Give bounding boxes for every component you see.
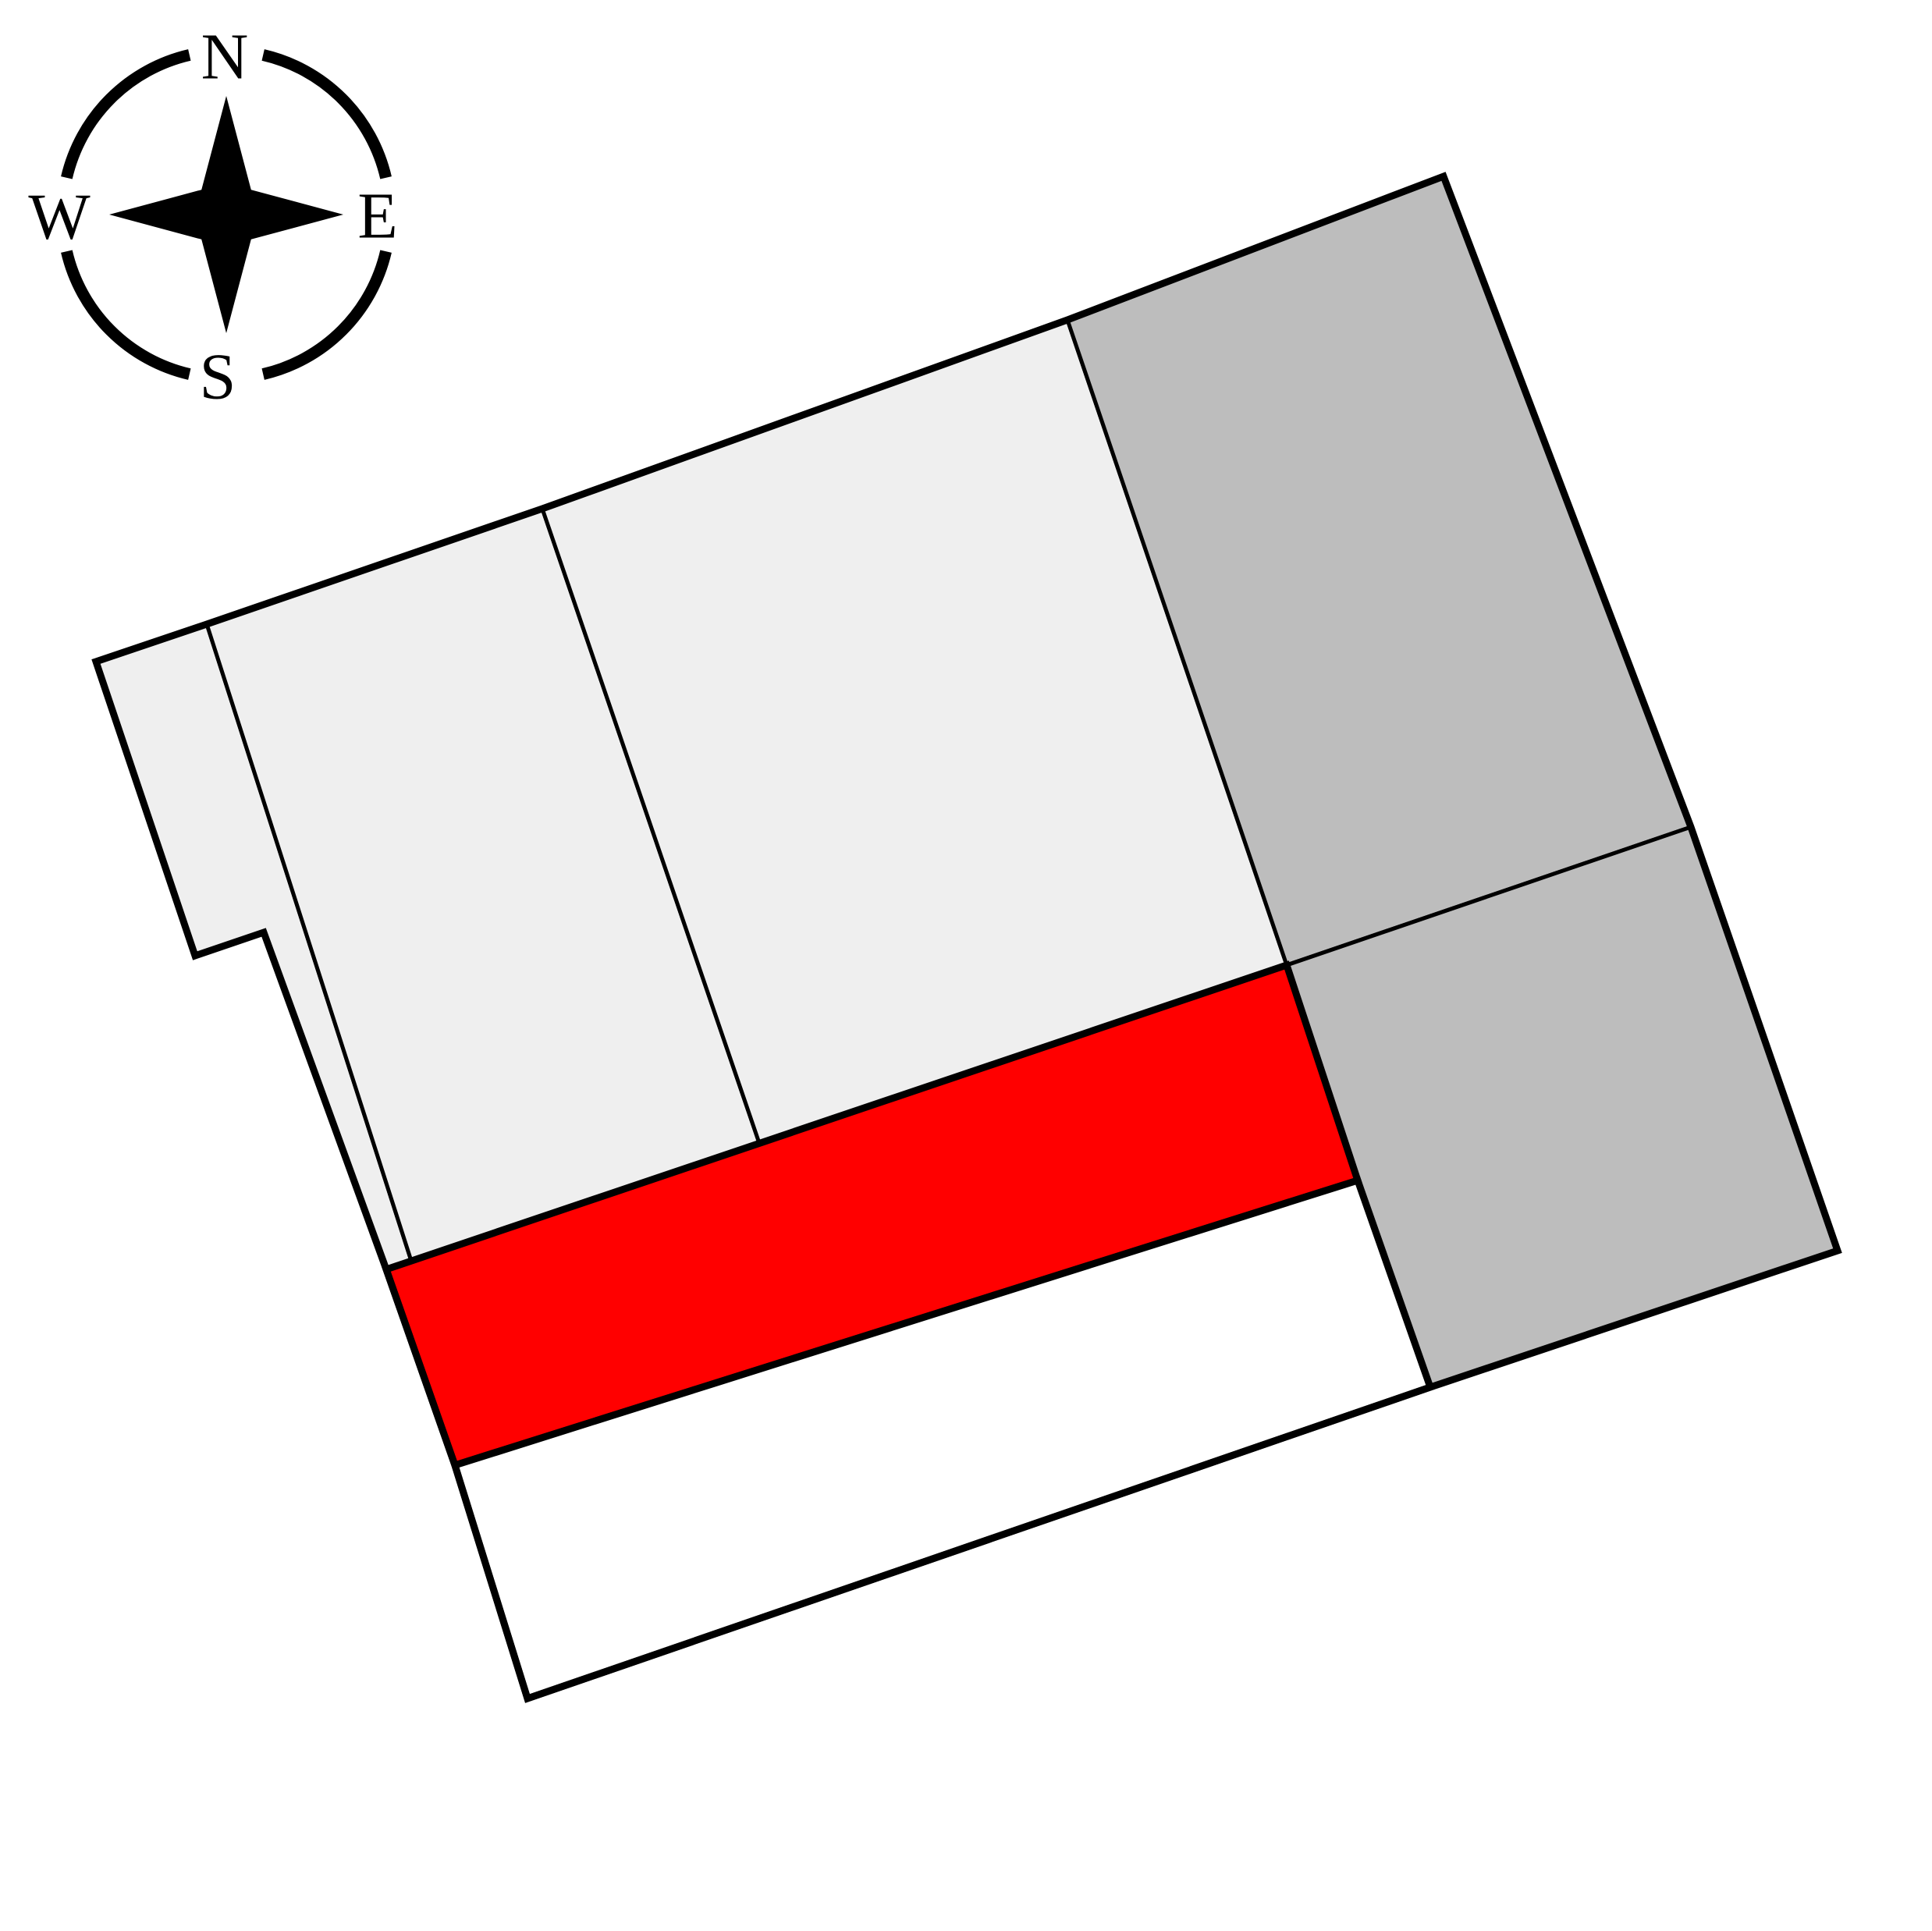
compass-ring-arc xyxy=(66,251,189,374)
compass-ring-arc xyxy=(263,251,385,374)
compass-label-n: N xyxy=(201,21,249,94)
compass-star-icon xyxy=(109,96,343,333)
screenshot-root: NESW xyxy=(0,0,1932,1931)
compass-ring-arc xyxy=(263,55,385,177)
parcel-map xyxy=(96,176,1838,1698)
compass-rose-icon: NESW xyxy=(28,21,397,414)
compass-label-w: W xyxy=(28,181,91,254)
parcel-map-canvas: NESW xyxy=(0,0,1932,1931)
compass-ring-arc xyxy=(66,55,189,177)
compass-label-s: S xyxy=(200,341,236,414)
compass-label-e: E xyxy=(357,180,397,253)
